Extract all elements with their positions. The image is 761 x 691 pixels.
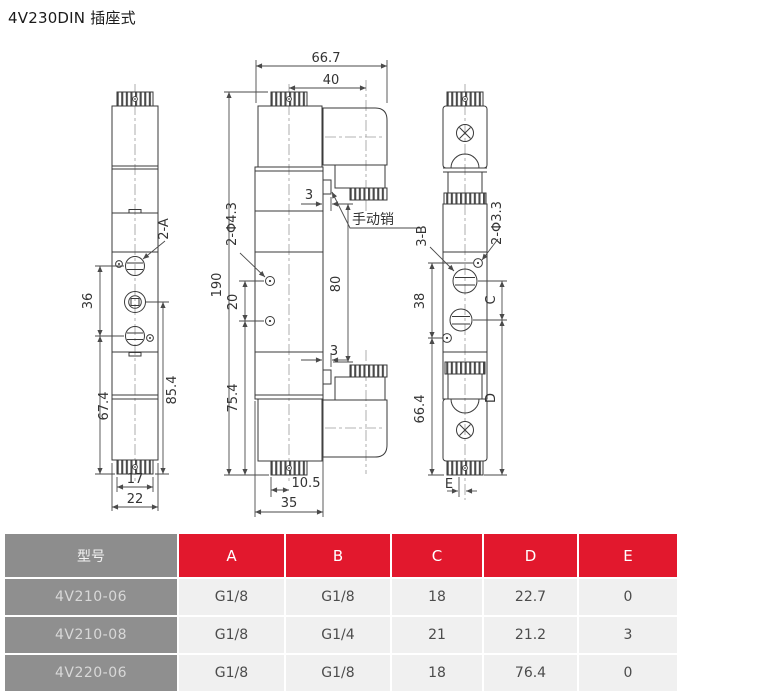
- din-connector-bottom: [323, 400, 387, 457]
- dim-label-67-4: 67.4: [97, 392, 112, 421]
- knurled-nut: [271, 92, 307, 106]
- col-header-model: 型号: [5, 534, 177, 577]
- value-cell: 0: [579, 655, 677, 691]
- dim-label-38: 38: [413, 293, 428, 310]
- value-cell: G1/8: [179, 655, 284, 691]
- dim-label-e: E: [445, 477, 453, 492]
- value-cell: G1/8: [286, 655, 390, 691]
- port-b-bottom: [450, 309, 472, 331]
- hole-label-2-d4-3: 2-Φ4.3: [225, 202, 240, 246]
- value-cell: 76.4: [484, 655, 577, 691]
- knurled-nut: [447, 92, 483, 106]
- model-cell: 4V220-06: [5, 655, 177, 691]
- dim-label-80: 80: [329, 276, 344, 293]
- port-label-2a: 2-A: [157, 218, 172, 240]
- dim-label-36: 36: [81, 293, 96, 310]
- value-cell: 18: [392, 655, 482, 691]
- value-cell: 21: [392, 617, 482, 653]
- dim-label-10-5: 10.5: [292, 476, 321, 491]
- solenoid-bottom: [258, 399, 322, 461]
- dim-label-20: 20: [226, 294, 241, 311]
- dim-label-66-4: 66.4: [413, 395, 428, 424]
- col-header-c: C: [392, 534, 482, 577]
- value-cell: G1/4: [286, 617, 390, 653]
- manual-pin-top: [323, 180, 331, 194]
- value-cell: G1/8: [179, 579, 284, 615]
- dim-label-75-4: 75.4: [226, 384, 241, 413]
- col-header-a: A: [179, 534, 284, 577]
- dim-label-35: 35: [281, 496, 298, 511]
- col-header-b: B: [286, 534, 390, 577]
- spec-table: 型号 A B C D E 4V210-06 G1/8 G1/8 18 22.7 …: [5, 534, 677, 691]
- dim-label-c: C: [484, 295, 499, 304]
- value-cell: 21.2: [484, 617, 577, 653]
- manual-pin-label: 手动销: [352, 212, 394, 228]
- col-header-e: E: [579, 534, 677, 577]
- din-connector-top: [323, 108, 387, 165]
- value-cell: 0: [579, 579, 677, 615]
- dim-label-17: 17: [127, 472, 144, 487]
- manual-pin-bottom: [323, 370, 331, 384]
- value-cell: G1/8: [286, 579, 390, 615]
- dim-label-66-7: 66.7: [312, 51, 341, 66]
- model-cell: 4V210-06: [5, 579, 177, 615]
- dim-label-40: 40: [323, 73, 340, 88]
- dim-label-3-top: 3: [305, 188, 313, 203]
- knurled-nut: [271, 461, 307, 475]
- dim-label-190: 190: [210, 273, 225, 298]
- value-cell: G1/8: [179, 617, 284, 653]
- value-cell: 22.7: [484, 579, 577, 615]
- knurled-nut: [447, 461, 483, 475]
- right-view: 38 66.4 C D E 3-B 2-Φ3.3: [413, 84, 507, 500]
- col-header-d: D: [484, 534, 577, 577]
- knurled-nut: [117, 92, 153, 106]
- dim-label-d: D: [484, 393, 499, 403]
- model-cell: 4V210-08: [5, 617, 177, 653]
- technical-drawing: 36 67.4 85.4 2-A 17 22: [0, 0, 761, 530]
- hole-label-2-d3-3: 2-Φ3.3: [490, 201, 505, 245]
- left-view: 36 67.4 85.4 2-A 17 22: [81, 84, 180, 511]
- port-label-3b: 3-B: [415, 225, 430, 246]
- dim-label-85-4: 85.4: [165, 376, 180, 405]
- dim-label-22: 22: [127, 492, 144, 507]
- value-cell: 3: [579, 617, 677, 653]
- dim-label-3-bottom: 3: [330, 344, 338, 359]
- front-view: 66.7 40 190 2-Φ4.3 20 75.4 80 3 3 手动销 10…: [210, 51, 420, 517]
- solenoid-top: [258, 106, 322, 167]
- value-cell: 18: [392, 579, 482, 615]
